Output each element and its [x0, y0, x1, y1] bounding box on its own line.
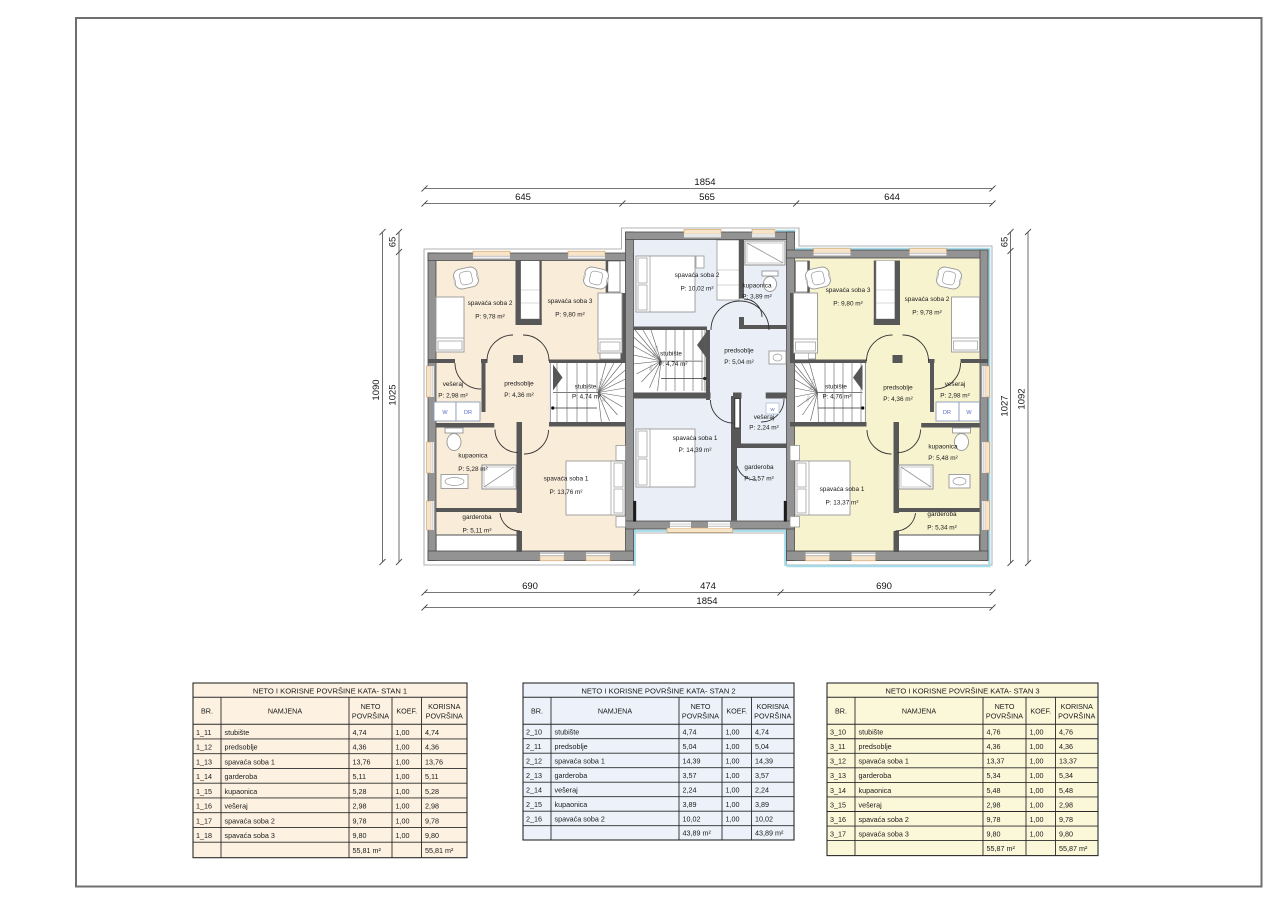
- svg-text:predsoblje: predsoblje: [859, 742, 892, 751]
- svg-text:1,00: 1,00: [396, 831, 410, 840]
- svg-text:1854: 1854: [694, 177, 715, 188]
- svg-text:KOEF.: KOEF.: [726, 707, 747, 716]
- svg-text:13,37: 13,37: [1059, 757, 1077, 766]
- svg-text:spavaća soba 2: spavaća soba 2: [675, 272, 720, 279]
- svg-text:BR.: BR.: [531, 707, 543, 716]
- svg-text:3,89: 3,89: [683, 800, 697, 809]
- svg-text:65: 65: [1000, 237, 1011, 248]
- svg-text:14,39: 14,39: [683, 757, 701, 766]
- svg-text:NETO I KORISNE POVRŠINE KATA-: NETO I KORISNE POVRŠINE KATA- STAN 2: [581, 687, 735, 696]
- svg-text:55,87 m²: 55,87 m²: [1059, 844, 1088, 853]
- svg-text:DR: DR: [943, 410, 951, 416]
- svg-text:KORISNA: KORISNA: [1061, 702, 1094, 711]
- svg-text:5,11: 5,11: [353, 772, 366, 781]
- svg-text:DR: DR: [464, 410, 472, 416]
- svg-text:garderoba: garderoba: [744, 464, 774, 471]
- svg-text:4,74: 4,74: [755, 728, 769, 737]
- svg-text:stubište: stubište: [575, 384, 597, 391]
- svg-text:3_14: 3_14: [830, 786, 846, 795]
- svg-text:BR.: BR.: [835, 707, 847, 716]
- svg-text:spavaća soba 1: spavaća soba 1: [544, 476, 589, 483]
- svg-text:POVRŠINA: POVRŠINA: [1058, 712, 1095, 721]
- svg-text:P: 9,80 m²: P: 9,80 m²: [555, 312, 584, 319]
- svg-text:9,80: 9,80: [425, 831, 439, 840]
- svg-text:5,28: 5,28: [425, 787, 439, 796]
- svg-text:65: 65: [388, 237, 399, 248]
- svg-text:2_16: 2_16: [526, 815, 542, 824]
- svg-text:1,00: 1,00: [1030, 829, 1044, 838]
- svg-text:2_13: 2_13: [526, 771, 542, 780]
- svg-text:1,00: 1,00: [1030, 742, 1044, 751]
- svg-text:5,34: 5,34: [1059, 771, 1073, 780]
- svg-text:1,00: 1,00: [726, 728, 740, 737]
- svg-text:1_17: 1_17: [196, 816, 212, 825]
- svg-text:1,00: 1,00: [396, 772, 410, 781]
- svg-text:9,78: 9,78: [425, 816, 439, 825]
- svg-text:spavaća soba 2: spavaća soba 2: [905, 296, 950, 303]
- svg-text:3_11: 3_11: [830, 742, 845, 751]
- svg-text:P: 4,74 m²: P: 4,74 m²: [572, 394, 601, 401]
- svg-text:2_11: 2_11: [526, 742, 541, 751]
- svg-text:P: 4,76 m²: P: 4,76 m²: [822, 394, 851, 401]
- svg-text:kupaonica: kupaonica: [555, 800, 588, 809]
- svg-text:vešeraj: vešeraj: [225, 802, 249, 811]
- svg-text:1,00: 1,00: [726, 800, 740, 809]
- svg-text:3_16: 3_16: [830, 815, 846, 824]
- svg-text:predsoblje: predsoblje: [225, 743, 258, 752]
- svg-text:43,89 m²: 43,89 m²: [683, 829, 712, 838]
- svg-text:predsoblje: predsoblje: [504, 381, 534, 388]
- svg-text:4,76: 4,76: [987, 728, 1001, 737]
- svg-text:5,48: 5,48: [1059, 786, 1073, 795]
- svg-text:5,28: 5,28: [353, 787, 367, 796]
- svg-text:P: 2,98 m²: P: 2,98 m²: [438, 393, 467, 400]
- svg-text:spavaća soba 3: spavaća soba 3: [548, 298, 593, 305]
- svg-text:P: 13,76 m²: P: 13,76 m²: [549, 489, 582, 496]
- svg-text:9,80: 9,80: [353, 831, 367, 840]
- svg-text:stubište: stubište: [825, 384, 847, 391]
- svg-text:spavaća soba 2: spavaća soba 2: [468, 300, 513, 307]
- svg-text:1,00: 1,00: [1030, 815, 1044, 824]
- svg-text:KORISNA: KORISNA: [757, 702, 790, 711]
- svg-text:P: 4,36 m²: P: 4,36 m²: [504, 392, 533, 399]
- svg-text:spavaća soba 2: spavaća soba 2: [859, 815, 909, 824]
- svg-text:2,98: 2,98: [987, 800, 1001, 809]
- svg-text:1,00: 1,00: [1030, 786, 1044, 795]
- svg-text:1_16: 1_16: [196, 802, 212, 811]
- svg-text:spavaća soba 3: spavaća soba 3: [859, 829, 909, 838]
- svg-text:vešeraj: vešeraj: [754, 414, 775, 421]
- svg-text:spavaća soba 2: spavaća soba 2: [225, 816, 275, 825]
- svg-text:3_13: 3_13: [830, 771, 846, 780]
- svg-text:10,02: 10,02: [755, 815, 773, 824]
- svg-text:9,78: 9,78: [987, 815, 1001, 824]
- svg-text:W: W: [966, 410, 972, 416]
- svg-text:spavaća soba 1: spavaća soba 1: [673, 435, 718, 442]
- svg-text:2,24: 2,24: [683, 786, 697, 795]
- svg-text:vešeraj: vešeraj: [945, 381, 966, 388]
- svg-text:kupaonica: kupaonica: [225, 787, 258, 796]
- svg-text:KORISNA: KORISNA: [428, 702, 461, 711]
- svg-text:1_11: 1_11: [196, 728, 211, 737]
- svg-text:4,76: 4,76: [1059, 728, 1073, 737]
- svg-text:NETO: NETO: [995, 702, 1015, 711]
- svg-text:predsoblje: predsoblje: [883, 385, 913, 392]
- svg-text:9,78: 9,78: [353, 816, 367, 825]
- svg-text:13,76: 13,76: [425, 757, 443, 766]
- svg-text:KOEF.: KOEF.: [1030, 707, 1051, 716]
- svg-text:4,74: 4,74: [425, 728, 439, 737]
- svg-text:3,57: 3,57: [683, 771, 697, 780]
- svg-text:55,81 m²: 55,81 m²: [425, 846, 454, 855]
- svg-text:1025: 1025: [388, 384, 399, 405]
- svg-text:1,00: 1,00: [396, 787, 410, 796]
- svg-text:2,98: 2,98: [1059, 800, 1073, 809]
- svg-text:1,00: 1,00: [726, 757, 740, 766]
- svg-text:P: 5,04 m²: P: 5,04 m²: [724, 359, 753, 366]
- svg-text:garderoba: garderoba: [462, 514, 492, 521]
- svg-text:3_12: 3_12: [830, 757, 846, 766]
- svg-text:garderoba: garderoba: [555, 771, 588, 780]
- svg-text:NAMJENA: NAMJENA: [902, 707, 937, 716]
- svg-text:1854: 1854: [696, 596, 717, 607]
- svg-text:1,00: 1,00: [396, 757, 410, 766]
- svg-text:4,36: 4,36: [987, 742, 1001, 751]
- svg-text:stubište: stubište: [660, 351, 682, 358]
- svg-text:1,00: 1,00: [396, 816, 410, 825]
- svg-text:3,89: 3,89: [755, 800, 769, 809]
- svg-text:P: 5,48 m²: P: 5,48 m²: [928, 455, 957, 462]
- svg-text:POVRŠINA: POVRŠINA: [682, 712, 719, 721]
- svg-text:POVRŠINA: POVRŠINA: [754, 712, 791, 721]
- svg-text:13,76: 13,76: [353, 757, 371, 766]
- svg-text:POVRŠINA: POVRŠINA: [426, 712, 463, 721]
- svg-text:stubište: stubište: [225, 728, 250, 737]
- svg-text:1,00: 1,00: [1030, 728, 1044, 737]
- svg-text:1,00: 1,00: [726, 815, 740, 824]
- svg-text:3_10: 3_10: [830, 728, 846, 737]
- svg-text:3_17: 3_17: [830, 829, 846, 838]
- svg-text:4,36: 4,36: [353, 743, 367, 752]
- svg-text:P: 2,98 m²: P: 2,98 m²: [940, 393, 969, 400]
- svg-text:vešeraj: vešeraj: [443, 381, 464, 388]
- svg-text:stubište: stubište: [555, 728, 580, 737]
- svg-text:1,00: 1,00: [726, 786, 740, 795]
- svg-text:P: 9,80 m²: P: 9,80 m²: [833, 301, 862, 308]
- svg-text:1,00: 1,00: [396, 802, 410, 811]
- svg-text:13,37: 13,37: [987, 757, 1005, 766]
- svg-text:10,02: 10,02: [683, 815, 701, 824]
- svg-text:P: 2,24 m²: P: 2,24 m²: [749, 425, 778, 432]
- svg-text:spavaća soba 3: spavaća soba 3: [826, 287, 871, 294]
- svg-text:NETO I KORISNE POVRŠINE KATA-: NETO I KORISNE POVRŠINE KATA- STAN 1: [253, 687, 407, 696]
- svg-text:NETO: NETO: [691, 702, 711, 711]
- svg-text:predsoblje: predsoblje: [724, 348, 754, 355]
- svg-text:predsoblje: predsoblje: [555, 742, 588, 751]
- svg-text:1_12: 1_12: [196, 743, 212, 752]
- svg-text:690: 690: [522, 581, 538, 592]
- svg-text:NETO: NETO: [361, 702, 381, 711]
- svg-text:P: 13,37 m²: P: 13,37 m²: [825, 500, 858, 507]
- svg-text:55,81 m²: 55,81 m²: [353, 846, 382, 855]
- svg-text:NAMJENA: NAMJENA: [268, 707, 303, 716]
- svg-text:2,98: 2,98: [425, 802, 439, 811]
- svg-text:5,34: 5,34: [987, 771, 1001, 780]
- svg-text:spavaća soba 2: spavaća soba 2: [555, 815, 605, 824]
- svg-text:3_15: 3_15: [830, 800, 846, 809]
- svg-text:1,00: 1,00: [726, 742, 740, 751]
- svg-text:kupaonica: kupaonica: [859, 786, 892, 795]
- svg-text:5,11: 5,11: [425, 772, 438, 781]
- svg-text:spavaća soba 3: spavaća soba 3: [225, 831, 275, 840]
- svg-text:1,00: 1,00: [1030, 800, 1044, 809]
- svg-text:P: 9,78 m²: P: 9,78 m²: [912, 310, 941, 317]
- svg-text:KOEF.: KOEF.: [396, 707, 417, 716]
- svg-text:1092: 1092: [1017, 388, 1028, 409]
- svg-text:1,00: 1,00: [396, 743, 410, 752]
- svg-text:2,24: 2,24: [755, 786, 769, 795]
- svg-text:9,80: 9,80: [1059, 829, 1073, 838]
- svg-text:1_13: 1_13: [196, 757, 212, 766]
- svg-text:474: 474: [700, 581, 716, 592]
- svg-text:spavaća soba 1: spavaća soba 1: [555, 757, 605, 766]
- svg-text:1090: 1090: [371, 379, 382, 400]
- svg-text:P: 5,28 m²: P: 5,28 m²: [458, 466, 487, 473]
- svg-text:POVRŠINA: POVRŠINA: [352, 712, 389, 721]
- svg-text:garderoba: garderoba: [927, 511, 957, 518]
- svg-text:55,87 m²: 55,87 m²: [987, 844, 1016, 853]
- svg-text:1,00: 1,00: [396, 728, 410, 737]
- svg-text:645: 645: [515, 192, 531, 203]
- svg-text:garderoba: garderoba: [225, 772, 258, 781]
- svg-text:BR.: BR.: [201, 707, 213, 716]
- svg-text:2_12: 2_12: [526, 757, 542, 766]
- svg-text:1027: 1027: [1000, 395, 1011, 416]
- svg-text:P: 9,78 m²: P: 9,78 m²: [475, 314, 504, 321]
- svg-text:P: 3,89 m²: P: 3,89 m²: [742, 294, 771, 301]
- svg-text:spavaća soba 1: spavaća soba 1: [859, 757, 909, 766]
- svg-text:P: 10,02 m²: P: 10,02 m²: [680, 286, 713, 293]
- svg-text:4,74: 4,74: [683, 728, 697, 737]
- svg-text:kupaonica: kupaonica: [742, 283, 772, 290]
- svg-text:14,39: 14,39: [755, 757, 773, 766]
- svg-text:P: 3,57 m²: P: 3,57 m²: [744, 476, 773, 483]
- svg-text:vešeraj: vešeraj: [859, 800, 883, 809]
- svg-text:1,00: 1,00: [1030, 771, 1044, 780]
- svg-text:P: 5,34 m²: P: 5,34 m²: [927, 525, 956, 532]
- svg-text:2,98: 2,98: [353, 802, 367, 811]
- svg-text:2_10: 2_10: [526, 728, 542, 737]
- svg-text:1,00: 1,00: [1030, 757, 1044, 766]
- svg-text:5,04: 5,04: [755, 742, 769, 751]
- svg-text:kupaonica: kupaonica: [928, 444, 958, 451]
- svg-text:3,57: 3,57: [755, 771, 769, 780]
- svg-text:vešeraj: vešeraj: [555, 786, 579, 795]
- svg-text:644: 644: [884, 192, 900, 203]
- svg-text:1_14: 1_14: [196, 772, 212, 781]
- svg-text:2_15: 2_15: [526, 800, 542, 809]
- svg-text:4,74: 4,74: [353, 728, 367, 737]
- svg-text:5,04: 5,04: [683, 742, 697, 751]
- svg-text:stubište: stubište: [859, 728, 884, 737]
- svg-text:NAMJENA: NAMJENA: [598, 707, 633, 716]
- svg-text:NETO I KORISNE POVRŠINE KATA-: NETO I KORISNE POVRŠINE KATA- STAN 3: [885, 687, 1039, 696]
- svg-text:9,78: 9,78: [1059, 815, 1073, 824]
- svg-text:spavaća soba 1: spavaća soba 1: [225, 757, 275, 766]
- svg-text:P: 4,74 m²: P: 4,74 m²: [658, 361, 687, 368]
- svg-text:4,36: 4,36: [425, 743, 439, 752]
- svg-text:W: W: [442, 410, 448, 416]
- svg-text:43,89 m²: 43,89 m²: [755, 829, 784, 838]
- svg-text:spavaća soba 1: spavaća soba 1: [820, 486, 865, 493]
- svg-text:5,48: 5,48: [987, 786, 1001, 795]
- svg-text:4,36: 4,36: [1059, 742, 1073, 751]
- svg-text:1_18: 1_18: [196, 831, 212, 840]
- svg-text:kupaonica: kupaonica: [458, 453, 488, 460]
- svg-text:9,80: 9,80: [987, 829, 1001, 838]
- svg-text:POVRŠINA: POVRŠINA: [986, 712, 1023, 721]
- svg-text:P: 5,11 m²: P: 5,11 m²: [462, 528, 491, 535]
- svg-text:1,00: 1,00: [726, 771, 740, 780]
- svg-text:690: 690: [876, 581, 892, 592]
- svg-text:P: 14,39 m²: P: 14,39 m²: [678, 447, 711, 454]
- svg-text:garderoba: garderoba: [859, 771, 892, 780]
- svg-text:1_15: 1_15: [196, 787, 212, 796]
- svg-text:2_14: 2_14: [526, 786, 542, 795]
- svg-text:565: 565: [699, 192, 715, 203]
- svg-text:P: 4,36 m²: P: 4,36 m²: [883, 396, 912, 403]
